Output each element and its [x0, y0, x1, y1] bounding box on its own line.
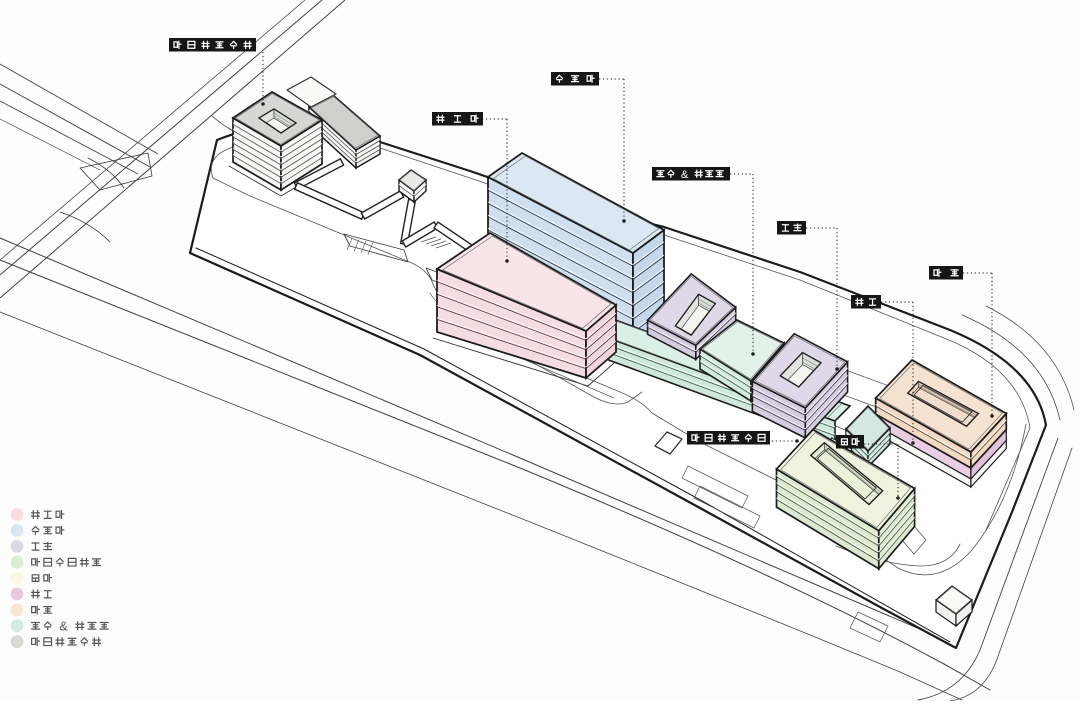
svg-text:&: & — [681, 169, 689, 181]
svg-text:&: & — [59, 619, 68, 633]
